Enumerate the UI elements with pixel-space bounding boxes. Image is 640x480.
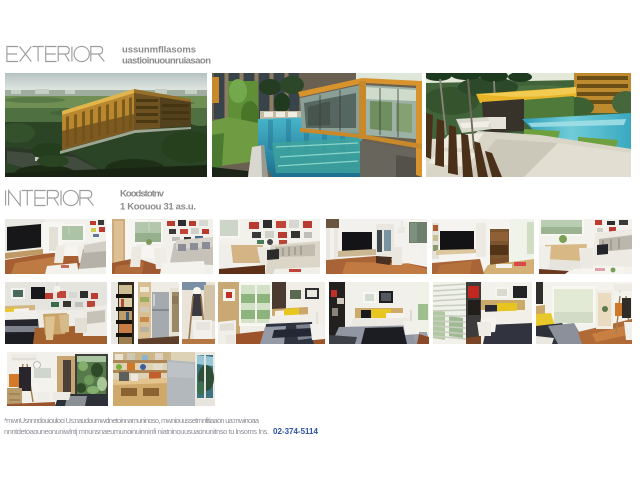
svg-text:nnntdetoaouneonuniwlntj mnunsn: nnntdetoaouneonuniwlntj mnunsnaeumunoinu… <box>4 427 269 436</box>
svg-text:ussunmfllasoms: ussunmfllasoms <box>122 45 196 56</box>
svg-text:Koodstotnv: Koodstotnv <box>120 189 165 200</box>
svg-text:uastioinuounruiasaon: uastioinuounruiasaon <box>122 56 211 67</box>
svg-text:1 Koouou 31 as.u.: 1 Koouou 31 as.u. <box>120 202 196 213</box>
svg-text:02-374-5114: 02-374-5114 <box>273 427 318 436</box>
svg-text:*mwnUsnnndouiouloci Us:naudoum: *mwnUsnnndouiouloci Us:naudoumwdnetoinna… <box>4 416 260 425</box>
